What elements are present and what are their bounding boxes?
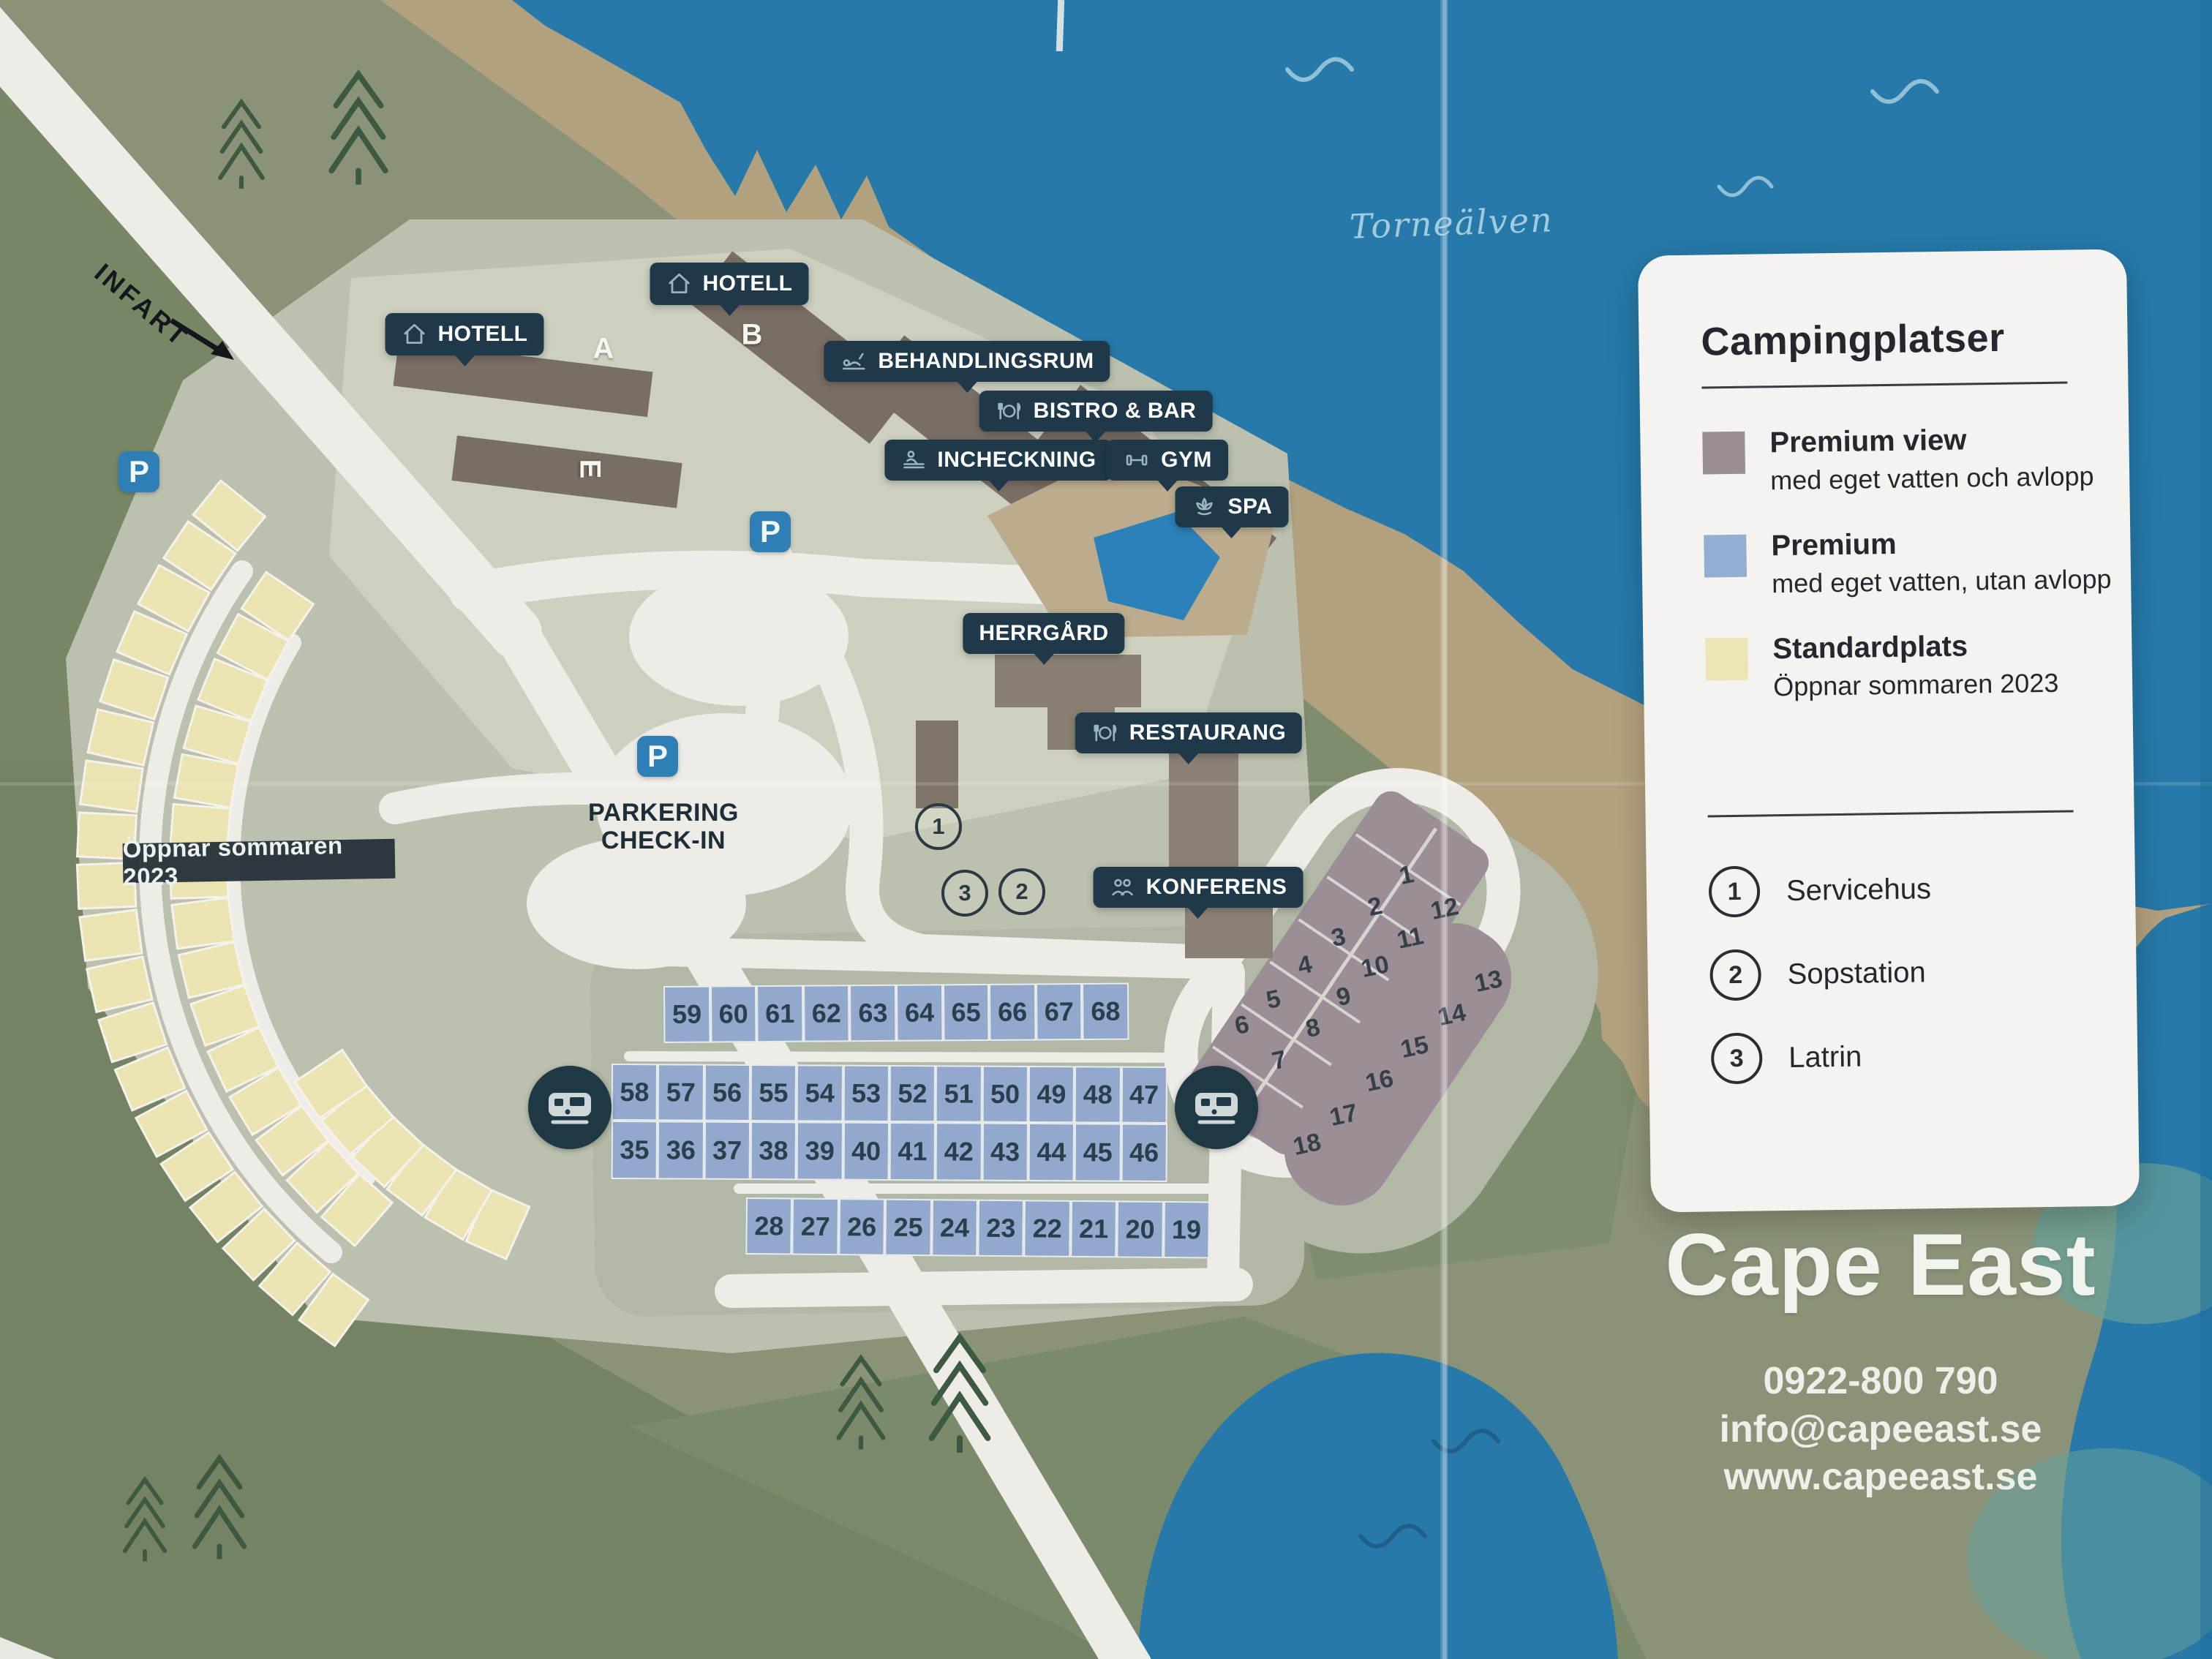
legend-swatch (1702, 432, 1745, 475)
parking-plaza (527, 838, 746, 969)
legend-item: Premium med eget vatten, utan avlopp (1704, 525, 2112, 601)
legend-card: Campingplatser Premium view med eget vat… (1638, 249, 2140, 1212)
legend-item-text: Premium med eget vatten, utan avlopp (1771, 525, 2112, 599)
premium-spot-61: 61 (756, 985, 803, 1042)
cutlery-icon (1091, 721, 1119, 745)
legend-marker-number: 1 (1709, 865, 1761, 917)
legend-divider (1708, 810, 2074, 817)
standard-spot (174, 754, 238, 808)
legend-swatch (1704, 535, 1747, 578)
premium-spot-43: 43 (982, 1123, 1028, 1181)
premium-spot-65: 65 (943, 984, 990, 1041)
legend-marker-number: 2 (1709, 949, 1761, 1001)
premium-spot-39: 39 (797, 1121, 843, 1180)
campus-plaza (629, 567, 849, 706)
premium-spot-26: 26 (838, 1198, 885, 1256)
house-icon (666, 271, 693, 297)
entrance-arrow-icon (167, 313, 247, 370)
caravan-icon (528, 1066, 612, 1149)
premium-spot-35: 35 (612, 1121, 658, 1179)
premium-spot-38: 38 (750, 1121, 797, 1180)
parking-icon: P (118, 451, 159, 492)
legend-marker-label: Latrin (1788, 1040, 1862, 1074)
premium-spot-41: 41 (889, 1122, 936, 1181)
parking-checkin-line1: PARKERING (588, 799, 739, 827)
premium-spot-63: 63 (849, 985, 896, 1042)
house-icon (402, 321, 428, 347)
website-url: www.capeeast.se (1658, 1453, 2104, 1502)
premium-spot-58: 58 (612, 1064, 658, 1121)
legend-item-desc: med eget vatten, utan avlopp (1772, 564, 2112, 599)
building-letter-a: A (593, 333, 614, 366)
premium-spot-21: 21 (1070, 1200, 1117, 1258)
premium-spot-53: 53 (843, 1065, 889, 1122)
email-address: info@capeeast.se (1658, 1406, 2104, 1454)
caravan-glyph (546, 1088, 594, 1126)
building-letter-b: B (742, 319, 763, 352)
standard-spot (172, 898, 234, 949)
campsite-map: INFART Torneälven Öppnar sommaren 2023 P… (0, 0, 2212, 1659)
facility-label-text: BEHANDLINGSRUM (878, 349, 1094, 374)
legend-item-name: Standardplats (1772, 629, 2058, 666)
premium-spot-row-1: 59606162636465666768 (663, 983, 1129, 1043)
road-rows-gap1 (629, 1056, 1170, 1058)
fold-crease-vertical (1442, 0, 1448, 1659)
dumbbell-icon (1123, 448, 1151, 473)
legend-item: Standardplats Öppnar sommaren 2023 (1705, 628, 2113, 704)
phone-number: 0922-800 790 (1658, 1358, 2104, 1406)
premium-spot-25: 25 (885, 1199, 932, 1257)
legend-marker-row: 3 Latrin (1711, 1030, 1934, 1084)
legend-swatch (1705, 638, 1748, 681)
premium-spot-20: 20 (1117, 1200, 1164, 1258)
massage-icon (840, 349, 868, 374)
road-rows-bottom (731, 1284, 1236, 1291)
premium-spot-19: 19 (1163, 1201, 1210, 1259)
premium-spot-row-3: 353637383940414243444546 (612, 1121, 1167, 1182)
premium-view-spot-18: 18 (1290, 1128, 1323, 1162)
premium-spot-56: 56 (704, 1064, 750, 1121)
legend-marker-label: Sopstation (1787, 956, 1926, 991)
legend-item-text: Standardplats Öppnar sommaren 2023 (1772, 629, 2059, 702)
facility-label-text: GYM (1161, 448, 1212, 473)
facility-label-spa: SPA (1175, 486, 1289, 527)
right-edge-shade (2200, 0, 2212, 1659)
premium-view-spot-11: 11 (1394, 922, 1426, 955)
legend-divider (1701, 382, 2067, 389)
facility-label-text: BISTRO & BAR (1034, 399, 1197, 424)
parking-icon: P (750, 511, 791, 552)
river-label: Torneälven (1349, 200, 1554, 247)
premium-spot-54: 54 (797, 1064, 843, 1121)
legend-item-text: Premium view med eget vatten och avlopp (1769, 422, 2094, 496)
facility-label-text: HOTELL (703, 271, 793, 296)
reception-icon (900, 448, 927, 473)
legend-marker-number: 3 (1711, 1032, 1763, 1084)
facility-label-bistro-bar: BISTRO & BAR (979, 391, 1213, 432)
premium-spot-51: 51 (936, 1065, 982, 1122)
legend-title: Campingplatser (1701, 315, 2005, 365)
premium-spot-60: 60 (710, 985, 757, 1042)
caravan-glyph (1192, 1088, 1241, 1126)
standard-spot (80, 761, 143, 812)
premium-view-spot-10: 10 (1358, 950, 1391, 984)
facility-label-text: KONFERENS (1146, 875, 1287, 900)
map-marker-2: 2 (998, 868, 1045, 915)
legend-marker-row: 2 Sopstation (1709, 947, 1933, 1001)
premium-spot-42: 42 (936, 1122, 982, 1181)
contact-info: 0922-800 790 info@capeeast.se www.capeea… (1658, 1358, 2104, 1502)
premium-spot-36: 36 (658, 1121, 704, 1179)
premium-spot-64: 64 (896, 984, 943, 1041)
facility-label-gym: GYM (1107, 440, 1228, 481)
building-small (916, 721, 958, 808)
standard-spot (80, 910, 142, 961)
premium-spot-47: 47 (1121, 1066, 1167, 1124)
premium-spot-52: 52 (889, 1065, 936, 1122)
brand-block: Cape East 0922-800 790 info@capeeast.se … (1658, 1214, 2104, 1502)
facility-label-text: RESTAURANG (1129, 721, 1286, 745)
pine-tree-icon (220, 102, 263, 190)
premium-view-spot-16: 16 (1363, 1064, 1396, 1098)
cutlery-icon (996, 399, 1023, 424)
premium-view-spot-12: 12 (1428, 892, 1461, 926)
premium-view-spot-13: 13 (1472, 965, 1505, 998)
premium-spot-row-4: 28272625242322212019 (745, 1197, 1210, 1259)
legend-item: Premium view med eget vatten och avlopp (1702, 422, 2110, 497)
premium-view-spot-14: 14 (1435, 998, 1468, 1032)
premium-spot-44: 44 (1028, 1123, 1075, 1181)
premium-spot-67: 67 (1036, 983, 1083, 1040)
premium-view-spot-17: 17 (1327, 1099, 1360, 1132)
legend-item-name: Premium view (1769, 422, 2093, 459)
premium-spot-48: 48 (1075, 1066, 1121, 1123)
facility-label-text: HERRGÅRD (979, 621, 1108, 646)
premium-spot-22: 22 (1024, 1200, 1071, 1257)
premium-spot-37: 37 (704, 1121, 750, 1180)
legend-items: Premium view med eget vatten och avlopp … (1702, 422, 2113, 704)
people-icon (1110, 875, 1136, 900)
facility-label-restaurang: RESTAURANG (1075, 712, 1302, 753)
legend-item-name: Premium (1771, 525, 2111, 563)
premium-spot-46: 46 (1121, 1124, 1167, 1182)
parking-checkin-label: PARKERING CHECK-IN (588, 799, 739, 854)
premium-spot-57: 57 (658, 1064, 704, 1121)
premium-spot-row-2: 585756555453525150494847 (612, 1064, 1167, 1124)
premium-spot-27: 27 (792, 1198, 839, 1256)
premium-view-spot-15: 15 (1398, 1031, 1431, 1064)
premium-spot-55: 55 (750, 1064, 797, 1121)
pine-tree-icon (331, 74, 385, 186)
legend-marker-label: Servicehus (1786, 873, 1931, 908)
parking-checkin-line2: CHECK-IN (588, 827, 739, 854)
facility-label-text: INCHECKNING (937, 448, 1096, 473)
brand-logo: Cape East (1658, 1214, 2104, 1315)
facility-label-text: HOTELL (438, 322, 528, 347)
facility-label-hotell-a: HOTELL (385, 313, 544, 355)
parking-icon: P (637, 736, 678, 777)
premium-spot-23: 23 (977, 1200, 1024, 1257)
lotus-icon (1192, 494, 1218, 519)
legend-markers: 1 Servicehus2 Sopstation3 Latrin (1709, 863, 1934, 1084)
map-marker-1: 1 (915, 803, 962, 850)
caravan-icon (1175, 1066, 1258, 1149)
facility-label-herrgard: HERRGÅRD (963, 613, 1124, 654)
premium-spot-28: 28 (745, 1197, 792, 1255)
premium-spot-62: 62 (803, 985, 850, 1042)
premium-spot-66: 66 (989, 983, 1036, 1040)
premium-spot-68: 68 (1082, 983, 1129, 1040)
facility-label-behandlingsrum: BEHANDLINGSRUM (824, 341, 1110, 382)
building-letter-e: E (573, 459, 606, 479)
premium-spot-45: 45 (1075, 1123, 1121, 1181)
legend-item-desc: med eget vatten och avlopp (1770, 461, 2094, 496)
legend-marker-row: 1 Servicehus (1709, 863, 1932, 917)
premium-spot-50: 50 (982, 1066, 1028, 1123)
facility-label-konferens: KONFERENS (1094, 867, 1303, 908)
premium-spot-49: 49 (1028, 1066, 1075, 1123)
road-rows-top (636, 951, 1200, 964)
facility-label-hotell-b: HOTELL (650, 263, 809, 305)
facility-label-text: SPA (1228, 494, 1273, 519)
opening-banner: Öppnar sommaren 2023 (123, 839, 396, 883)
premium-spot-59: 59 (663, 986, 710, 1043)
facility-label-incheckning: INCHECKNING (884, 440, 1112, 481)
legend-item-desc: Öppnar sommaren 2023 (1773, 668, 2059, 702)
premium-spot-40: 40 (843, 1122, 889, 1181)
premium-spot-24: 24 (931, 1199, 978, 1257)
map-marker-3: 3 (941, 870, 988, 917)
